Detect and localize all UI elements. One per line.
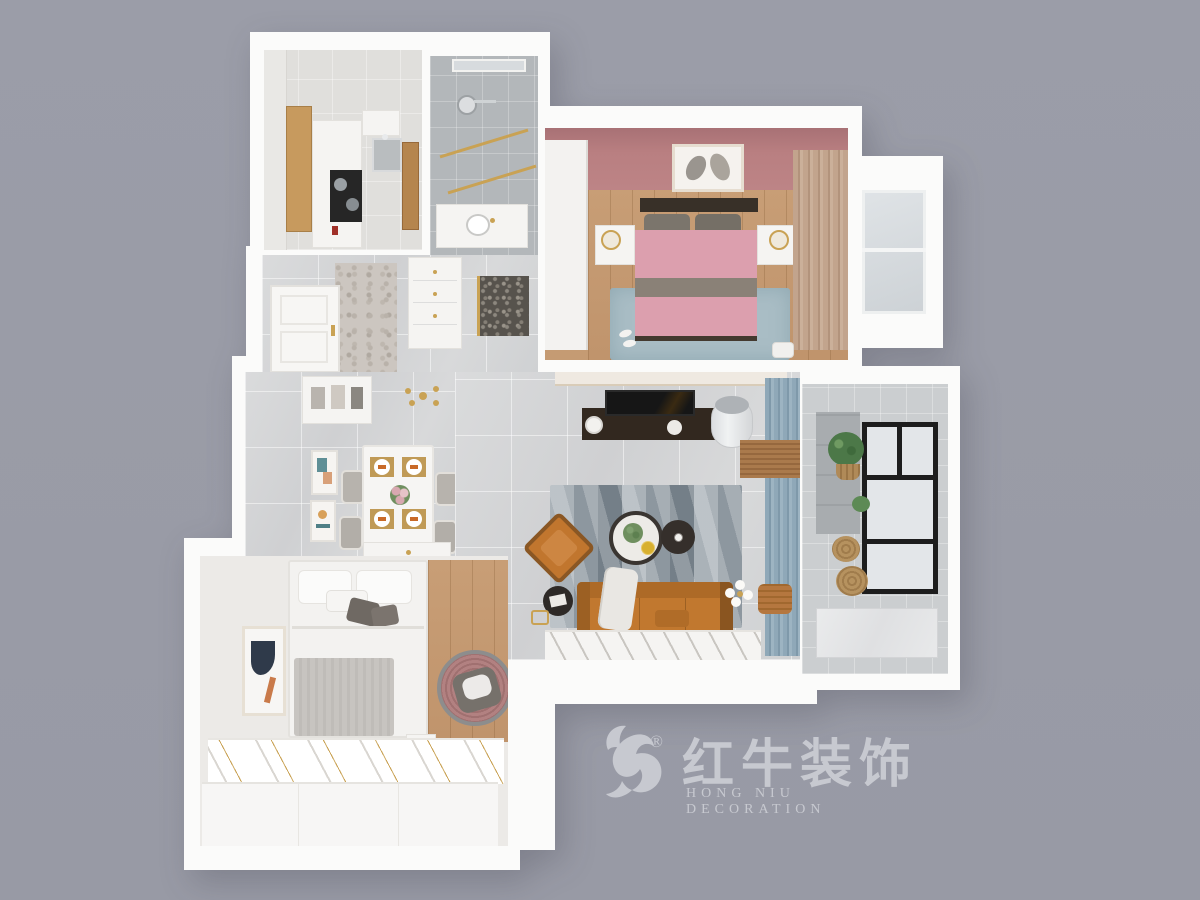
living-curtain-blue (765, 378, 800, 656)
chandelier-globe (419, 392, 427, 400)
bay-window (848, 160, 940, 344)
niche-frame (311, 387, 325, 409)
bed2-duvet-line (292, 626, 424, 629)
room-entry-hall (262, 255, 538, 391)
art-shape-teal (316, 524, 330, 528)
bed-headboard (640, 198, 758, 212)
drawer-line (413, 324, 457, 325)
lamp-globe (743, 590, 753, 600)
coffee-cup (674, 533, 683, 542)
kitchen-pot (346, 198, 359, 211)
drawer-knob (433, 292, 437, 296)
room-dining (245, 372, 455, 560)
drawer-knob (433, 270, 437, 274)
bedroom-wardrobe (545, 140, 588, 350)
bay-window-mullion (862, 248, 926, 252)
niche-frame (351, 387, 363, 409)
bed2-gray-blanket (294, 658, 394, 736)
dining-art-frame (310, 500, 336, 542)
balcony-counter (816, 608, 938, 658)
bedroom2-wardrobe-top (208, 738, 504, 784)
shower-head (457, 95, 477, 115)
room-master-bedroom (545, 128, 848, 360)
bed-foot-bar (635, 336, 757, 341)
placemat (402, 509, 426, 529)
scene: ® 红牛装饰 HONG NIU DECORATION (0, 0, 1200, 900)
art-feather (708, 151, 732, 183)
kitchen-sink (372, 138, 402, 172)
drawer-line (413, 280, 457, 281)
fruit-plate (641, 541, 655, 555)
bed-fold-gray (635, 278, 757, 297)
napkin-orange (378, 465, 386, 469)
kitchen-door (402, 142, 419, 230)
console-decor (667, 420, 682, 435)
placemat (370, 457, 394, 477)
art-feather (683, 153, 708, 183)
bathroom-faucet (490, 218, 495, 223)
bay-window-glass (862, 190, 926, 314)
window-mullion (867, 539, 933, 544)
balcony-plant-large (828, 432, 864, 466)
lamp-globe (731, 597, 741, 607)
bedroom-curtain (793, 150, 848, 350)
armchair-cushion (539, 528, 579, 568)
hall-mosaic-floor (335, 263, 397, 385)
placemat (370, 509, 394, 529)
kitchen-cooktop (330, 170, 362, 222)
flower-centerpiece (390, 485, 410, 505)
brand-watermark: ® 红牛装饰 HONG NIU DECORATION (594, 714, 924, 824)
entry-door (270, 285, 340, 373)
console-tray (585, 416, 603, 434)
bedroom-art-frame (672, 144, 744, 192)
hall-drawer-cabinet (408, 257, 462, 349)
art-shape-peach (323, 472, 332, 484)
cabinet-seam (298, 784, 299, 846)
chandelier-globe (433, 386, 439, 392)
wall-block-stub (505, 650, 555, 850)
kitchen-counter (362, 110, 400, 136)
gold-stool (531, 610, 549, 625)
wood-blind (740, 440, 800, 478)
coffee-table-marble (609, 511, 663, 565)
room-balcony (802, 384, 948, 674)
room-bathroom (430, 56, 538, 258)
wire-lamp-left (601, 230, 621, 250)
shower-arm (474, 100, 496, 103)
bedroom-chair (772, 342, 794, 358)
art-shape-navy (251, 641, 275, 675)
window-mullion (867, 475, 933, 480)
plant-basket (836, 464, 860, 480)
napkin-orange (378, 517, 386, 521)
art-shape-orange (264, 677, 276, 704)
dining-chandelier (403, 384, 443, 408)
lamp-joint (737, 591, 743, 597)
tv-screen (605, 390, 695, 416)
room-kitchen (264, 50, 422, 250)
bed2-pillow-dark (370, 604, 399, 628)
napkin-orange (410, 517, 418, 521)
sofa-cushion (655, 610, 689, 627)
patterned-glass-door (477, 276, 529, 336)
sideboard-knob (406, 550, 411, 555)
floor-lamp-globes (725, 580, 755, 608)
dining-chair (339, 516, 363, 550)
tv-feature-wall (555, 372, 787, 386)
shower-glass-frame (440, 129, 529, 159)
placemat (402, 457, 426, 477)
dining-chair (435, 472, 455, 506)
dining-niche-shelf (302, 376, 372, 424)
bedroom2-art-frame (242, 626, 286, 716)
balcony-window (862, 422, 938, 594)
kitchen-wall-tile (264, 50, 287, 250)
woven-basket (836, 566, 868, 596)
art-shape-teal (317, 458, 327, 472)
bedroom2-cabinet-front (202, 782, 498, 846)
drawer-knob (433, 314, 437, 318)
chandelier-globe (409, 400, 415, 406)
magazine (549, 593, 567, 607)
window-mullion (897, 427, 902, 475)
lamp-globe (735, 580, 745, 590)
bathroom-basin (466, 214, 490, 236)
room-second-bedroom (200, 556, 508, 846)
kitchen-red-item (332, 226, 338, 235)
copper-pouf (758, 584, 792, 614)
window-bench (545, 630, 761, 660)
dining-art-frame (311, 450, 338, 495)
bathroom-slit-window (452, 59, 526, 72)
table-plant (623, 523, 643, 543)
ac-top (715, 396, 749, 414)
entry-door-panel (280, 331, 328, 363)
entry-door-handle (331, 325, 335, 336)
shower-glass-frame (448, 165, 537, 195)
rattan-chair (437, 650, 508, 726)
drawer-line (413, 302, 457, 303)
kitchen-pot (334, 178, 347, 191)
chandelier-globe (405, 388, 411, 394)
cabinet-seam (398, 784, 399, 846)
kitchen-wood-cabinet (286, 106, 312, 232)
art-shape-sun (318, 510, 327, 519)
napkin-orange (410, 465, 418, 469)
registered-mark: ® (650, 732, 663, 752)
entry-door-panel (280, 295, 328, 325)
kitchen-faucet (382, 134, 388, 140)
wire-lamp-right (769, 230, 789, 250)
woven-basket (832, 536, 860, 562)
bed2 (288, 560, 428, 738)
niche-frame (331, 385, 345, 409)
chandelier-globe (433, 400, 439, 406)
coffee-table-dark (661, 520, 695, 554)
dining-table (362, 445, 434, 547)
balcony-plant-small (852, 496, 870, 512)
brand-name-en: HONG NIU DECORATION (686, 786, 924, 818)
